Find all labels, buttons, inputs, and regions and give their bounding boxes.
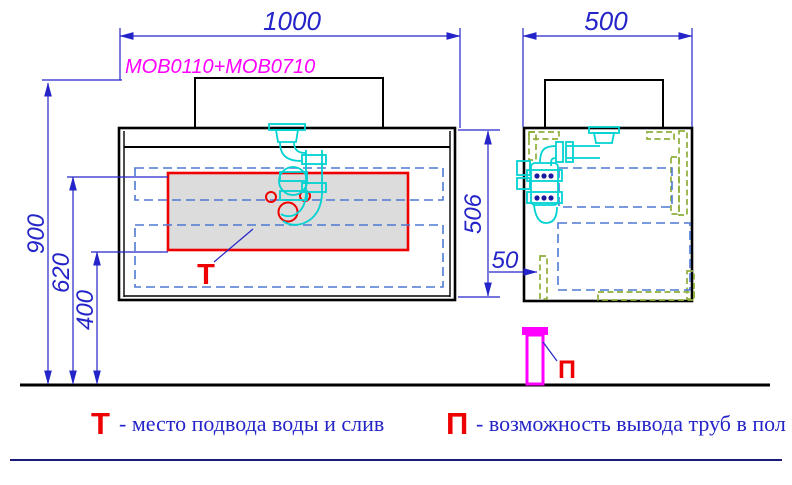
legend-t-text: - место подвода воды и слив <box>119 411 384 436</box>
floor-pipe: П <box>522 327 576 384</box>
vanity-installation-drawing: Т <box>0 0 792 485</box>
dim-620: 620 <box>48 252 75 293</box>
technical-drawing-page: Т <box>0 0 792 485</box>
dim-500: 500 <box>584 6 628 36</box>
side-drawer-top-hidden <box>559 168 672 207</box>
side-panel-hidden-lines <box>529 131 694 300</box>
legend-t-symbol: Т <box>91 406 110 441</box>
t-marker: Т <box>197 259 215 291</box>
dim-400: 400 <box>72 289 99 330</box>
legend-p-symbol: П <box>446 406 468 441</box>
legend-p-text: - возможность вывода труб в пол <box>476 411 786 436</box>
side-basin-outline <box>545 80 663 128</box>
water-supply-zone <box>168 173 408 250</box>
floor-pipe-body <box>527 335 543 384</box>
side-view <box>517 80 694 301</box>
dim-506: 506 <box>460 193 487 234</box>
dim-50: 50 <box>492 247 519 274</box>
model-label: MOB0110+MOB0710 <box>125 56 315 78</box>
side-drawer-bottom-hidden <box>558 223 690 290</box>
front-basin-outline <box>195 78 383 128</box>
legend: Т - место подвода воды и слив П - возмож… <box>91 406 786 441</box>
dim-900: 900 <box>23 213 50 254</box>
siphon-side-icon <box>517 127 619 223</box>
dim-1000: 1000 <box>263 6 321 36</box>
front-view: Т <box>119 78 455 300</box>
p-leader-line <box>543 342 557 361</box>
p-marker: П <box>558 356 576 384</box>
siphon-bolts <box>534 173 553 200</box>
side-cabinet-outline <box>524 128 692 301</box>
